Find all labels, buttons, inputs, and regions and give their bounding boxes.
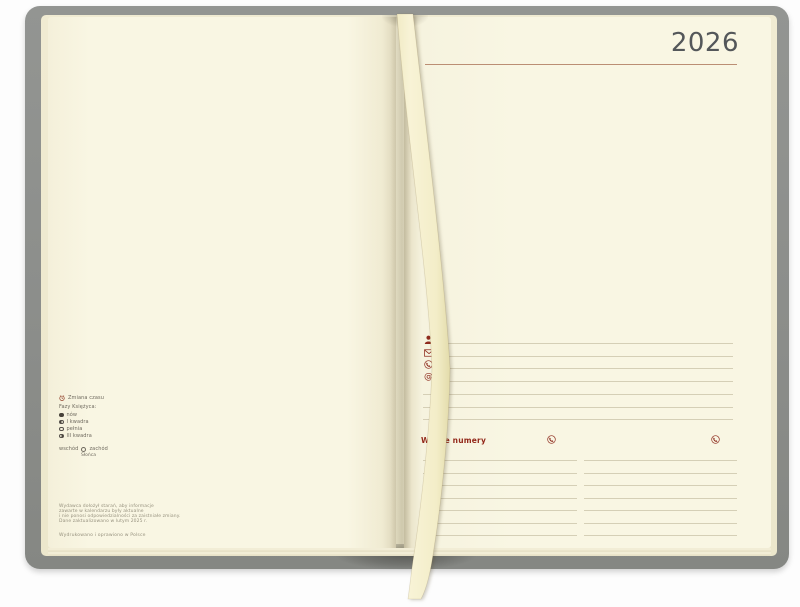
owner-email-row: @ (424, 369, 733, 382)
ruled-line (423, 535, 577, 536)
disclaimer-line: Dane zaktualizowano w lutym 2025 r. (59, 519, 180, 524)
owner-phone-row (424, 356, 733, 369)
at-sign-icon: @ (424, 373, 433, 382)
ruled-line (423, 460, 577, 461)
moon-phase-label: pełnia (67, 427, 83, 432)
important-numbers-row (423, 523, 737, 524)
ruled-line (423, 485, 577, 486)
sunset-label: zachód (89, 447, 107, 452)
moon-phase-row: III kwadra (59, 433, 108, 439)
moon-phase-label: I kwadra (67, 420, 89, 425)
ruled-line (584, 535, 738, 536)
ruled-line (423, 394, 733, 395)
third-quarter-moon-icon (59, 434, 64, 439)
owner-name-row (424, 331, 733, 344)
first-quarter-moon-icon (59, 420, 64, 425)
owner-address-row (424, 344, 733, 357)
moon-phase-row: I kwadra (59, 419, 108, 425)
sunrise-sunset-row: wschód zachód (59, 446, 108, 452)
ruled-line (584, 473, 738, 474)
sun-subject-label: Słońca (81, 453, 108, 458)
publisher-disclaimer: Wydawca dołożył starań, aby informacje z… (59, 504, 180, 524)
important-numbers-row (423, 498, 737, 499)
important-numbers-row (423, 460, 737, 461)
moon-phase-label: III kwadra (67, 434, 92, 439)
phone-icon (711, 435, 720, 444)
ruled-line (423, 473, 577, 474)
alarm-clock-icon (59, 395, 65, 401)
ruled-line (584, 523, 738, 524)
new-moon-icon (59, 413, 64, 418)
time-change-label: Zmiana czasu (68, 396, 104, 401)
full-moon-icon (59, 427, 64, 432)
ruled-line (584, 510, 738, 511)
ruled-line (423, 510, 577, 511)
right-page: 2026 @ (404, 17, 771, 548)
diary-photo: Zmiana czasu Fazy Księżyca: nów I kwadra… (0, 0, 800, 607)
printed-in-poland-note: Wydrukowano i oprawiono w Polsce (59, 533, 146, 538)
moon-phase-row: pełnia (59, 426, 108, 432)
ruled-line (423, 523, 577, 524)
sunrise-label: wschód (59, 447, 78, 452)
gutter-shadow (390, 17, 412, 548)
ruled-line (423, 498, 577, 499)
moon-phase-row: nów (59, 412, 108, 418)
ruled-line (423, 419, 733, 420)
phone-icon (547, 435, 556, 444)
ruled-line (437, 381, 733, 382)
time-change-row: Zmiana czasu (59, 395, 108, 401)
important-numbers-heading: Ważne numery (421, 436, 486, 445)
header-rule (425, 64, 737, 65)
ruled-line (584, 498, 738, 499)
ruled-line (584, 460, 738, 461)
year-label: 2026 (671, 29, 739, 57)
moon-phase-label: nów (67, 413, 78, 418)
moon-phases-heading: Fazy Księżyca: (59, 405, 108, 410)
important-numbers-row (423, 535, 737, 536)
important-numbers-row (423, 510, 737, 511)
sun-icon (81, 447, 86, 452)
gutter-top-shadow (382, 15, 428, 27)
important-numbers-row (423, 485, 737, 486)
ruled-line (584, 485, 738, 486)
important-numbers-row (423, 473, 737, 474)
calendar-legend: Zmiana czasu Fazy Księżyca: nów I kwadra… (59, 395, 108, 458)
left-page: Zmiana czasu Fazy Księżyca: nów I kwadra… (48, 17, 396, 548)
ruled-line (423, 407, 733, 408)
page-bottom-edge (48, 548, 771, 556)
